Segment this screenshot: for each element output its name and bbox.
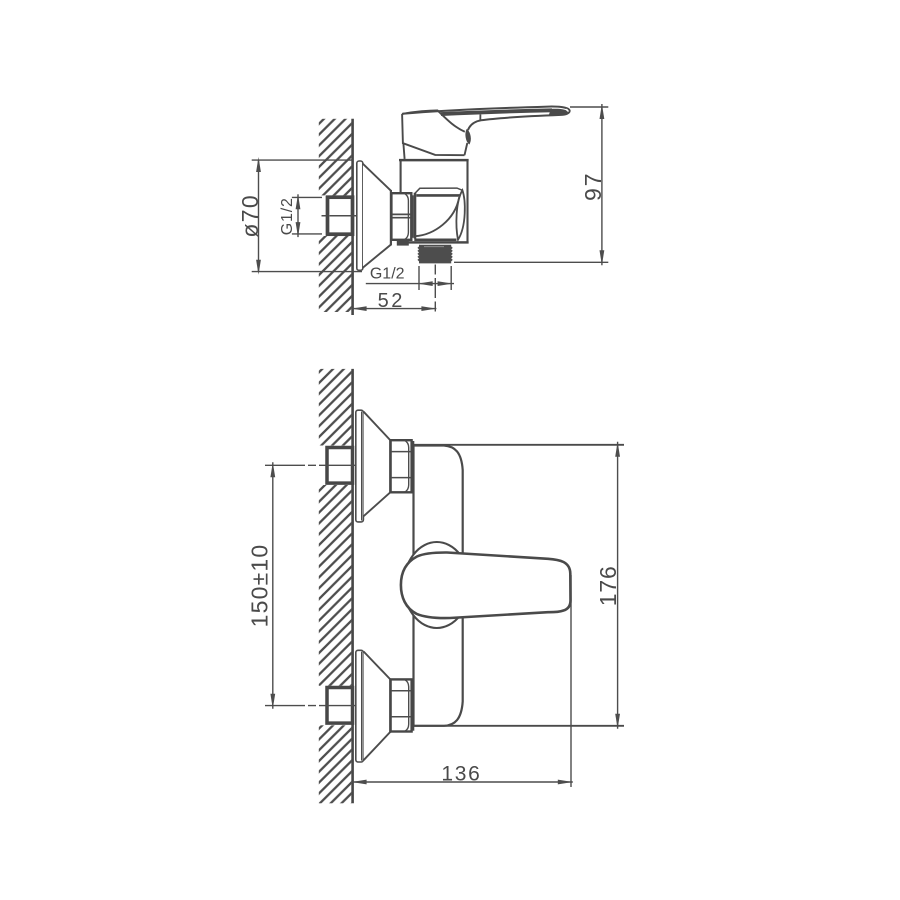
svg-text:ø70: ø70 bbox=[237, 194, 263, 238]
svg-text:52: 52 bbox=[378, 290, 405, 312]
svg-text:G1/2: G1/2 bbox=[279, 197, 296, 235]
svg-text:176: 176 bbox=[595, 565, 621, 606]
svg-text:136: 136 bbox=[441, 763, 481, 786]
svg-text:G1/2: G1/2 bbox=[370, 266, 405, 283]
svg-text:97: 97 bbox=[580, 172, 606, 201]
svg-text:150±10: 150±10 bbox=[247, 544, 273, 628]
